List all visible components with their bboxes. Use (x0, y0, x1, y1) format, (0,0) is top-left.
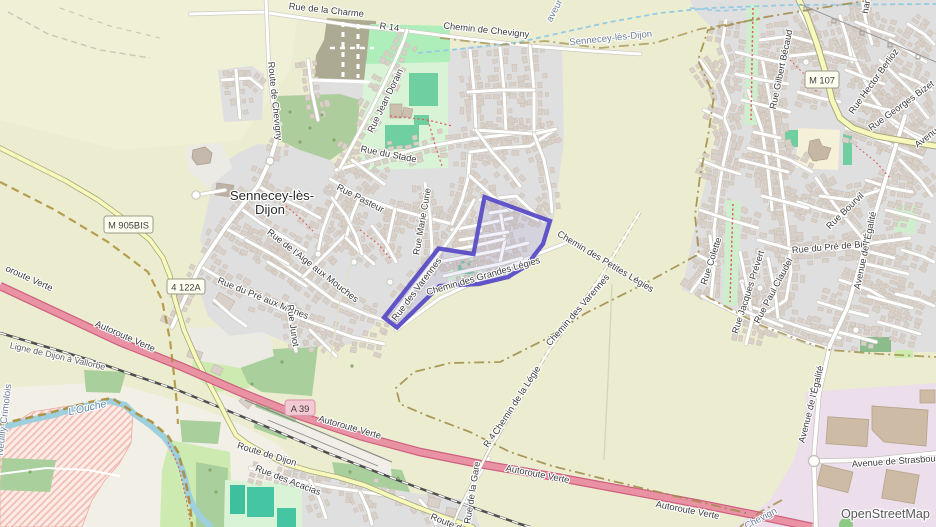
svg-text:Sennecey-lès-: Sennecey-lès- (230, 188, 314, 203)
svg-text:OpenStreetMap: OpenStreetMap (841, 507, 930, 521)
svg-text:Dijon: Dijon (255, 202, 285, 217)
svg-text:4 122A: 4 122A (171, 283, 201, 293)
svg-text:M 905BIS: M 905BIS (108, 221, 149, 231)
svg-text:M 107: M 107 (809, 76, 835, 86)
svg-text:A 39: A 39 (291, 404, 310, 414)
